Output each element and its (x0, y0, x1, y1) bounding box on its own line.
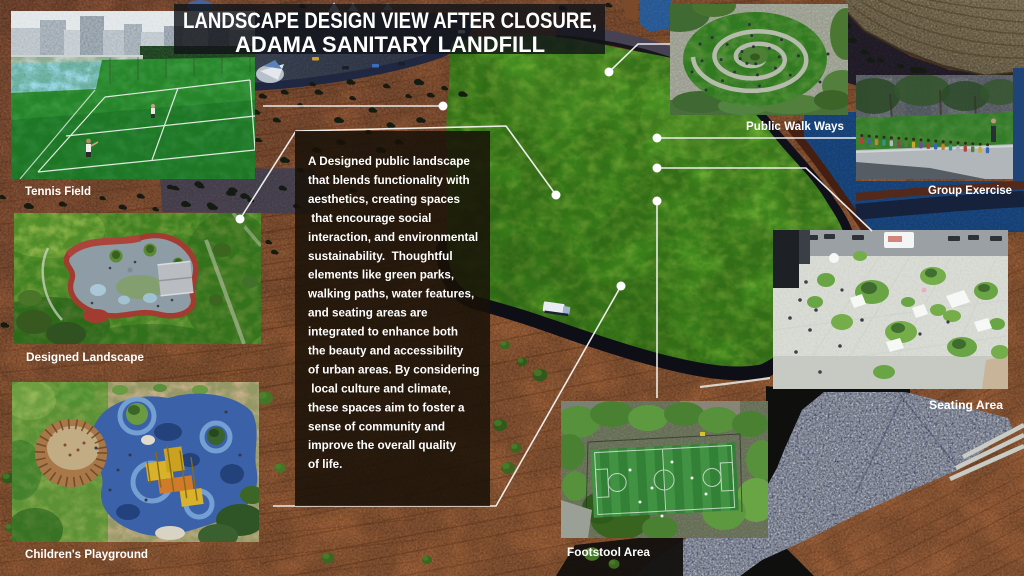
svg-text:improve the overall quality: improve the overall quality (308, 439, 457, 452)
svg-text:of urban areas. By considering: of urban areas. By considering (308, 363, 479, 376)
svg-text:Footstool Area: Footstool Area (567, 547, 651, 559)
svg-text:of life.: of life. (308, 458, 342, 471)
svg-text:Group Exercise: Group Exercise (928, 185, 1012, 197)
svg-text:Public Walk Ways: Public Walk Ways (746, 121, 844, 133)
svg-text:that encourage social: that encourage social (308, 212, 431, 225)
svg-text:Designed Landscape: Designed Landscape (26, 352, 144, 364)
svg-text:the beauty and accessibility: the beauty and accessibility (308, 345, 464, 358)
svg-text:and seating areas are: and seating areas are (308, 307, 428, 320)
svg-text:Children's Playground: Children's Playground (25, 549, 148, 561)
svg-text:interaction, and environmental: interaction, and environmental (308, 231, 478, 244)
svg-text:walking paths, water features,: walking paths, water features, (307, 288, 474, 301)
svg-text:ADAMA SANITARY LANDFILL: ADAMA SANITARY LANDFILL (235, 32, 545, 57)
svg-text:these spaces aim to foster a: these spaces aim to foster a (308, 401, 465, 414)
svg-text:aesthetics, creating spaces: aesthetics, creating spaces (308, 193, 461, 206)
svg-text:A Designed public landscape: A Designed public landscape (308, 155, 470, 168)
svg-text:LANDSCAPE DESIGN VIEW AFTER CL: LANDSCAPE DESIGN VIEW AFTER CLOSURE, (183, 8, 597, 33)
svg-text:integrated to enhance both: integrated to enhance both (308, 326, 458, 339)
svg-text:that blends functionality with: that blends functionality with (308, 174, 470, 187)
svg-text:Seating Area: Seating Area (929, 400, 1004, 412)
svg-text:sustainability. Thoughtful: sustainability. Thoughtful (308, 250, 453, 263)
svg-text:Tennis Field: Tennis Field (25, 186, 91, 198)
svg-text:local culture and climate,: local culture and climate, (308, 382, 451, 395)
svg-text:elements like green parks,: elements like green parks, (308, 269, 454, 282)
svg-text:sense of community and: sense of community and (308, 420, 445, 433)
